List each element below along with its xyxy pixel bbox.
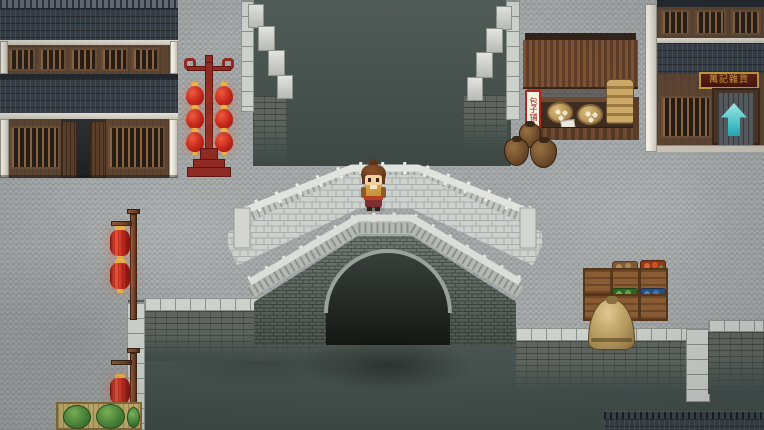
character-collar: [370, 185, 377, 189]
canal-step: [486, 28, 503, 53]
canal-step: [268, 50, 285, 76]
building-general-store: 萬記雜貨: [645, 0, 764, 152]
character-sidehair: [362, 174, 365, 184]
corner-pillar: [170, 41, 178, 74]
lantern-pole-upper: [130, 214, 137, 320]
clay-jar: [504, 138, 529, 166]
red-lantern-rack: [183, 54, 235, 178]
eave-edge: [657, 0, 764, 7]
south-roof-tiles: [604, 419, 764, 430]
canal-step: [277, 75, 293, 99]
building-inn: [0, 0, 178, 178]
corner-pillar: [0, 119, 9, 178]
embankment-coping-right-b: [708, 320, 764, 332]
lattice-window: [101, 48, 128, 71]
cabbage: [63, 405, 91, 429]
hanging-lantern: [110, 378, 130, 404]
embankment-wall-right-b: [708, 332, 764, 394]
corner-pillar: [169, 119, 178, 178]
bridge-shoulder-left: [234, 208, 250, 248]
lattice-window: [108, 126, 165, 169]
wooden-crate: [583, 268, 612, 295]
inn-doorway[interactable]: [61, 119, 106, 178]
stall-banner-text: 包子铺: [529, 97, 537, 121]
round-lantern: [186, 109, 204, 129]
threshold-step: [657, 145, 764, 152]
canal-step: [467, 77, 483, 101]
lattice-window: [661, 10, 690, 35]
corner-pillar: [0, 41, 8, 74]
cabbage-partial: [127, 407, 140, 428]
awning-top-rail: [525, 33, 636, 40]
lattice-window: [132, 48, 159, 71]
corner-pillar: [645, 4, 657, 152]
character-sidehair: [382, 174, 385, 184]
stall-post-right: [633, 97, 639, 140]
lattice-window: [731, 10, 761, 35]
character-eye: [376, 178, 379, 182]
south-roof-ridge: [604, 411, 764, 419]
rack-base-foot: [187, 167, 231, 177]
shop-plaque: 萬記雜貨: [699, 72, 759, 89]
canal-step: [258, 26, 275, 51]
steamer-basket-stack: [606, 79, 634, 124]
roof-tiles-lower: [0, 79, 178, 113]
embankment-coping-right-vertical: [686, 328, 710, 402]
bridge-water-shadow: [300, 338, 475, 393]
clay-jar: [530, 139, 557, 168]
character-foot: [367, 207, 372, 211]
cabbage: [96, 404, 125, 429]
character-foot: [375, 207, 380, 211]
lattice-window: [8, 48, 35, 71]
shop-plaque-text: 萬記雜貨: [709, 76, 749, 85]
round-lantern: [215, 109, 233, 129]
pole-arm: [111, 360, 132, 365]
rack-pole: [205, 62, 213, 156]
roof-ridge: [0, 0, 178, 9]
canal-step: [496, 6, 512, 30]
game-viewport[interactable]: 包子铺 萬記雜貨: [0, 0, 764, 430]
bun-stall[interactable]: 包子铺: [503, 33, 640, 170]
lattice-window: [70, 48, 97, 71]
character-eye: [368, 178, 371, 182]
door-panel-right: [90, 121, 106, 178]
lattice-window: [10, 126, 60, 169]
canal-step: [248, 4, 264, 28]
canal-step: [476, 52, 493, 78]
wall-base-shadow: [0, 175, 178, 178]
bun-basket: [577, 104, 603, 125]
bridge-shoulder-right: [520, 208, 536, 248]
lattice-window: [39, 48, 66, 71]
roof-tiles-upper: [0, 9, 178, 40]
round-lantern: [215, 86, 233, 106]
player-character[interactable]: [359, 159, 389, 211]
round-lantern: [186, 86, 204, 106]
roof-tiles: [657, 43, 764, 74]
lattice-window: [695, 10, 726, 35]
lattice-window: [661, 96, 711, 138]
hanging-lantern: [110, 263, 130, 289]
wooden-crate: [639, 294, 668, 321]
door-panel-left: [61, 121, 77, 178]
hanging-lantern: [110, 230, 130, 256]
